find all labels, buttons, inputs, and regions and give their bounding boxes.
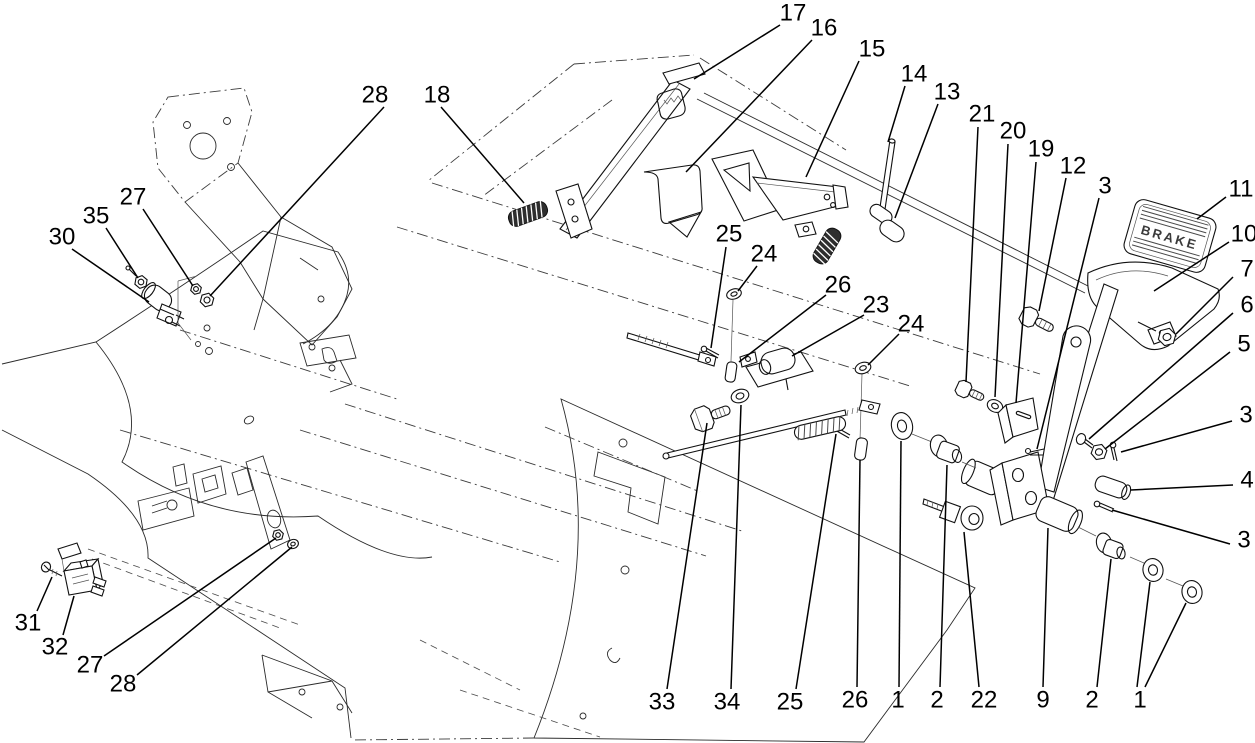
callout-34: 34 [714, 689, 741, 716]
callout-22: 22 [971, 687, 998, 714]
callout-21: 21 [969, 101, 996, 128]
leader-line-21 [966, 127, 978, 382]
part-18-spring [506, 200, 549, 229]
callout-18: 18 [424, 82, 451, 109]
leader-line-34 [731, 405, 741, 689]
exploded-parts-diagram: BRAKE [0, 0, 1255, 743]
callout-15: 15 [859, 36, 886, 63]
leader-line-35 [106, 228, 138, 278]
part-28-nut-upper [199, 292, 216, 307]
part-9-pivot-pin [1034, 494, 1086, 536]
callout-19: 19 [1028, 136, 1055, 163]
part-21-bolt [954, 379, 987, 406]
callout-20: 20 [1000, 118, 1027, 145]
leader-line-12 [1039, 178, 1066, 311]
callout-26b: 26 [842, 687, 869, 714]
callout-24a: 24 [751, 241, 778, 268]
part-13-pin [867, 202, 907, 245]
part-1-washer-right-2 [1180, 579, 1204, 606]
part-1-washer-left [889, 411, 932, 442]
callout-13: 13 [934, 79, 961, 106]
part-34-washer [729, 387, 750, 405]
callout-2b: 2 [1085, 687, 1098, 714]
leader-line-28a [210, 107, 384, 296]
part-26-pin-right [854, 437, 868, 460]
leader-line-27b [104, 538, 276, 656]
leader-line-1a [899, 441, 901, 687]
leader-line-2a [940, 465, 947, 687]
callout-24b: 24 [898, 311, 925, 338]
callout-6: 6 [1240, 292, 1253, 319]
part-33-bolt [689, 398, 734, 434]
part-24-washer [725, 287, 742, 361]
callout-2a: 2 [930, 687, 943, 714]
leader-line-33 [667, 423, 707, 689]
brake-cable-upper [627, 333, 716, 366]
callout-1a: 1 [891, 687, 904, 714]
part-35-nut [133, 274, 149, 289]
part-26-pin [725, 361, 738, 382]
callout-35: 35 [83, 203, 110, 230]
callout-27b: 27 [77, 652, 104, 679]
callout-3c: 3 [1237, 527, 1250, 554]
part-5-nut [1090, 444, 1108, 460]
callout-3b: 3 [1239, 402, 1252, 429]
leader-line-25a [711, 247, 726, 348]
leader-line-5 [1105, 352, 1230, 449]
diagram-canvas: BRAKE [0, 0, 1255, 743]
part-3-cotter-pin-bottom [1094, 501, 1114, 512]
leader-line-26b [857, 460, 860, 687]
leader-line-13 [895, 104, 938, 218]
part-28-washer-lower [286, 538, 299, 550]
callout-27a: 27 [120, 184, 147, 211]
callout-4: 4 [1240, 467, 1253, 494]
callout-1b: 1 [1133, 687, 1146, 714]
part-6-screw [1075, 432, 1093, 448]
leader-line-27a [143, 209, 193, 286]
part-2-bushing-right [1078, 527, 1144, 563]
leader-line-3b [1121, 421, 1232, 452]
pedal-arm [1036, 284, 1118, 504]
callout-7: 7 [1240, 256, 1253, 283]
leader-line-25b [796, 434, 836, 689]
leader-line-20 [995, 144, 1008, 397]
leader-line-9 [1043, 528, 1048, 687]
callout-11: 11 [1229, 176, 1254, 203]
leader-line-11 [1197, 197, 1226, 219]
leader-line-30 [72, 249, 149, 302]
callout-31: 31 [15, 610, 42, 637]
callout-32: 32 [42, 634, 69, 661]
leader-line-2b [1097, 559, 1111, 687]
leader-line-15 [806, 61, 859, 177]
callout-12: 12 [1060, 153, 1087, 180]
callout-16: 16 [811, 15, 838, 42]
callout-14: 14 [901, 61, 928, 88]
leader-line-18 [441, 107, 524, 203]
callout-9: 9 [1036, 687, 1049, 714]
callout-17: 17 [780, 0, 807, 27]
leader-line-22 [964, 532, 979, 687]
leader-line-4 [1131, 485, 1233, 490]
callout-25b: 25 [777, 689, 804, 716]
part-31-screw [40, 561, 62, 576]
part-16-pad [644, 165, 702, 237]
callout-28a: 28 [362, 82, 389, 109]
part-4-clevis-pin [1093, 474, 1132, 501]
leader-line-23 [792, 315, 864, 356]
callout-25a: 25 [716, 221, 743, 248]
chassis-phantom-outlines [2, 55, 1090, 742]
leader-line-19 [1016, 162, 1036, 403]
callout-10: 10 [1231, 221, 1255, 248]
callout-3a: 3 [1098, 173, 1111, 200]
leader-line-17 [694, 25, 780, 79]
part-22-rod-end [923, 499, 983, 530]
leader-line-32 [63, 596, 74, 635]
leader-line-1b [1145, 603, 1186, 687]
leader-line-31 [37, 577, 52, 611]
leader-line-14 [888, 86, 905, 142]
callout-23: 23 [863, 292, 890, 319]
leader-line-24a [738, 266, 757, 291]
part-14-rod [879, 139, 895, 216]
leader-line-1b [1137, 582, 1150, 687]
callout-5: 5 [1237, 331, 1250, 358]
leader-line-24b [868, 334, 899, 365]
leader-line-3c [1112, 510, 1230, 544]
callout-26a: 26 [825, 272, 852, 299]
callout-28b: 28 [110, 671, 137, 698]
part-19-bracket [998, 398, 1038, 443]
part-1-washer-right-1 [1141, 557, 1183, 586]
callout-33: 33 [649, 689, 676, 716]
part-32-switch [58, 543, 106, 596]
callout-30: 30 [49, 224, 76, 251]
